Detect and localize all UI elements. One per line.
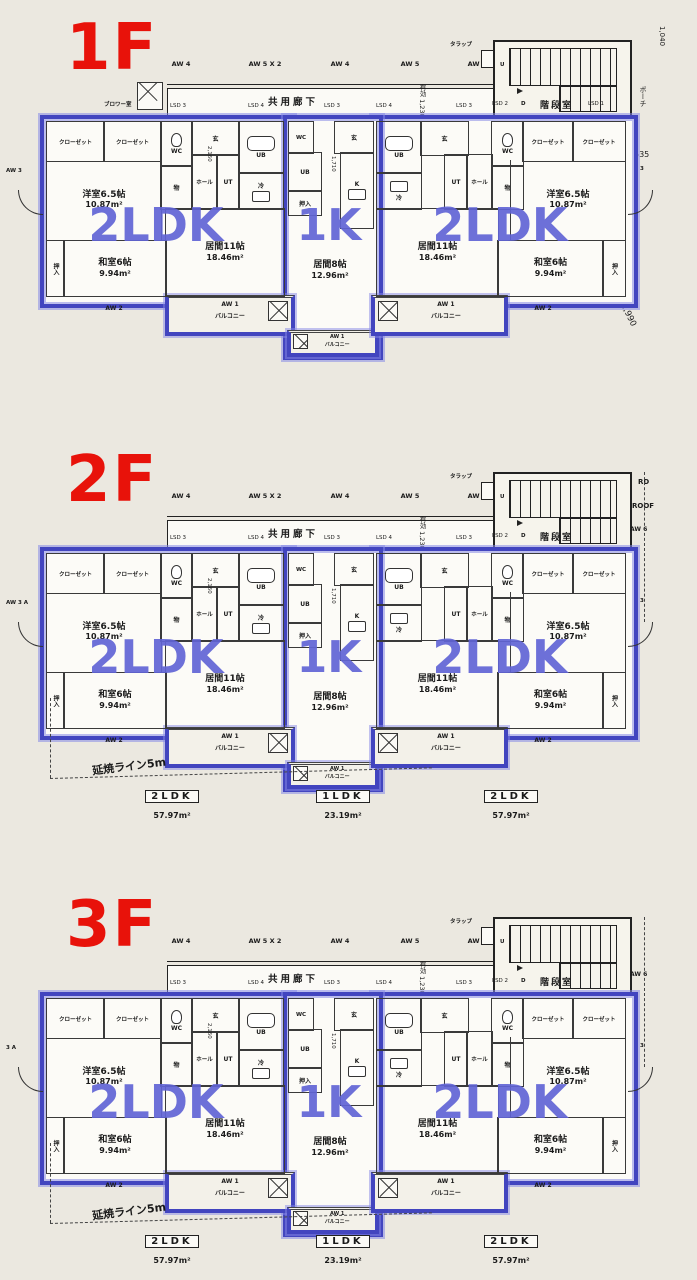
stair-lsd2-label: LSD 2 (492, 978, 508, 984)
common-corridor (167, 520, 494, 547)
balcony: AW 1 バルコニー (371, 295, 508, 336)
room-unit-bath: UB (288, 1029, 322, 1069)
kitchen-sink-icon (390, 613, 408, 624)
unit-summary: 2LDK 57.97m² (471, 784, 551, 822)
room-kitchen: 冷 (238, 604, 284, 642)
trap-ladder-label: タラップ (450, 40, 472, 48)
effective-width-dim: 有効 1,230 (418, 84, 425, 116)
window-label: AW 5 X 2 (249, 937, 282, 945)
window-label: AW 5 (401, 492, 420, 500)
common-corridor (167, 88, 494, 115)
room-wc: WC (288, 121, 314, 154)
room-futon-closet: 押入 (602, 1117, 626, 1174)
room-closet: クローゼット (103, 553, 162, 594)
window-label: AW 4 (331, 492, 350, 500)
kitchen-sink-icon (348, 189, 366, 200)
stair-treads-upper (509, 480, 617, 518)
lsd-door-label: LSD 4 (376, 103, 392, 109)
blower-room-box-icon (137, 82, 163, 110)
window-label: AW 5 X 2 (249, 60, 282, 68)
door-arc (18, 190, 43, 215)
dim-1710: 1,710 (330, 156, 336, 172)
aw2-label: AW 2 (105, 1182, 122, 1189)
lsd-door-label: LSD 3 (170, 980, 186, 986)
unit-summary: 2LDK 57.97m² (132, 1229, 212, 1267)
unit-summary: 2LDK 57.97m² (471, 1229, 551, 1267)
lsd-door-label: LSD 3 (456, 535, 472, 541)
dim-1710: 1,710 (330, 1033, 336, 1049)
room-unit-bath: UB (238, 121, 284, 174)
lsd-door-label: LSD 3 (324, 980, 340, 986)
effective-width-dim: 有効 1,230 (418, 516, 425, 548)
stair-up-label: U (500, 939, 504, 945)
room-wc: WC (160, 553, 193, 599)
hatch-box-icon (268, 733, 288, 753)
lsd-door-label: LSD 4 (248, 535, 264, 541)
hatch-box-icon (293, 766, 308, 781)
room-unit-bath: UB (376, 121, 422, 174)
room-entry: 玄 (191, 553, 240, 588)
hatch-box-icon (268, 301, 288, 321)
lsd-door-label: LSD 4 (248, 980, 264, 986)
room-entry: 玄 (191, 998, 240, 1033)
room-closet: クローゼット (572, 553, 626, 594)
window-band-line (167, 961, 493, 966)
room-futon-closet: 押入 (46, 1117, 65, 1174)
bathtub-icon (247, 568, 275, 583)
trap-ladder-label: タラップ (450, 472, 472, 480)
aw2-label: AW 2 (105, 737, 122, 744)
balcony: AW 1 バルコニー (287, 330, 379, 357)
room-closet: クローゼット (46, 998, 105, 1039)
trap-ladder-label: タラップ (450, 917, 472, 925)
bathtub-icon (385, 1013, 413, 1028)
lsd-door-label: LSD 4 (248, 103, 264, 109)
room-entry: 玄 (420, 998, 469, 1033)
hatch-box-icon (293, 334, 308, 349)
aw2-label: AW 2 (534, 305, 551, 312)
common-corridor (167, 965, 494, 992)
unit-type-label: 2LDK (86, 634, 226, 680)
stair-treads-upper (509, 48, 617, 86)
floor-label: 2F (66, 448, 158, 512)
room-kitchen: 冷 (376, 604, 422, 642)
room-closet: クローゼット (103, 998, 162, 1039)
window-label: AW 5 (401, 60, 420, 68)
kitchen-sink-icon (390, 1058, 408, 1069)
unit-type-label: 2LDK (430, 202, 570, 248)
toilet-icon (502, 133, 513, 147)
stair-up-label: U (500, 494, 504, 500)
corridor-label: 共用廊下 (268, 94, 318, 108)
lsd-door-label: LSD 4 (376, 980, 392, 986)
stair-lsd1-label: LSD 1 (588, 101, 604, 107)
door-arc (18, 622, 43, 647)
aw2-label: AW 2 (534, 1182, 551, 1189)
unit-type-label: 2LDK (86, 1079, 226, 1125)
door-arc (18, 1067, 43, 1092)
door-arc (628, 190, 653, 215)
balcony: AW 1 バルコニー (165, 295, 295, 336)
kitchen-sink-icon (390, 181, 408, 192)
lsd-door-label: LSD 3 (324, 103, 340, 109)
aw2-label: AW 2 (534, 737, 551, 744)
hatch-box-icon (293, 1211, 308, 1226)
stair-down-label: D (521, 978, 526, 984)
room-kitchen: 冷 (376, 172, 422, 210)
room-futon-closet: 押入 (602, 240, 626, 297)
dim-1040: 1,040 (658, 26, 666, 46)
kitchen-sink-icon (252, 191, 270, 202)
stair-lsd2-label: LSD 2 (492, 533, 508, 539)
room-unit-bath: UB (376, 553, 422, 606)
door-arc (628, 622, 653, 647)
room-entry: 玄 (334, 998, 374, 1031)
stairwell-label: 階段室 (540, 530, 573, 543)
balcony: AW 1 バルコニー (371, 1172, 508, 1213)
hatch-box-icon (378, 733, 398, 753)
door-arc (628, 1067, 653, 1092)
room-unit-bath: UB (288, 584, 322, 624)
stair-down-label: D (521, 101, 526, 107)
effective-width-dim: 有効 1,230 (418, 961, 425, 993)
floor-section: 2F AW 4 AW 5 X 2 AW 4 AW 5 AW 4 共用廊下 LSD… (0, 432, 697, 875)
dim-2160: 2,160 (206, 578, 212, 594)
window-label: AW 4 (172, 60, 191, 68)
balcony: AW 1 バルコニー (371, 727, 508, 768)
room-futon-closet: 押入 (602, 672, 626, 729)
stair-direction-arrow (517, 88, 523, 94)
floor-plan-sheet: 1F ブロワー室 AW 4 AW 5 X 2 AW 4 AW 5 AW 4 共用… (0, 0, 697, 1280)
floor-section: 1F ブロワー室 AW 4 AW 5 X 2 AW 4 AW 5 AW 4 共用… (0, 0, 697, 430)
lsd-door-label: LSD 3 (456, 980, 472, 986)
property-dash-line (644, 472, 645, 622)
room-closet: クローゼット (522, 553, 574, 594)
room-unit-bath: UB (238, 998, 284, 1051)
aw2-label: AW 2 (105, 305, 122, 312)
window-label: AW 4 (172, 492, 191, 500)
window-label: AW 4 (172, 937, 191, 945)
room-entry: 玄 (334, 121, 374, 154)
blower-room-label: ブロワー室 (104, 100, 132, 108)
lsd-door-label: LSD 3 (170, 535, 186, 541)
room-unit-bath: UB (238, 553, 284, 606)
bathtub-icon (385, 136, 413, 151)
stair-direction-arrow (517, 520, 523, 526)
corridor-label: 共用廊下 (268, 971, 318, 985)
unit-type-label: 2LDK (430, 634, 570, 680)
room-kitchen: 冷 (238, 1049, 284, 1087)
dim-1710: 1,710 (330, 588, 336, 604)
dim-2160: 2,160 (206, 146, 212, 162)
window-label: AW 4 (331, 60, 350, 68)
bathtub-icon (247, 1013, 275, 1028)
room-wc: WC (160, 998, 193, 1044)
room-closet: クローゼット (572, 121, 626, 162)
hatch-box-icon (268, 1178, 288, 1198)
stair-up-label: U (500, 62, 504, 68)
stairwell-label: 階段室 (540, 975, 573, 988)
stair-treads-upper (509, 925, 617, 963)
stair-down-label: D (521, 533, 526, 539)
floor-section: 3F AW 4 AW 5 X 2 AW 4 AW 5 AW 4 共用廊下 LSD… (0, 877, 697, 1280)
room-closet: クローゼット (46, 553, 105, 594)
room-kitchen: 冷 (376, 1049, 422, 1087)
toilet-icon (171, 565, 182, 579)
lsd-door-label: LSD 3 (456, 103, 472, 109)
window-band-line (167, 516, 493, 521)
room-wc: WC (160, 121, 193, 167)
room-futon-closet: 押入 (46, 240, 65, 297)
room-entry: 玄 (191, 121, 240, 156)
unit-type-label: 1K (283, 636, 375, 680)
unit-summary: 1LDK 23.19m² (303, 1229, 383, 1267)
unit-summary: 2LDK 57.97m² (132, 784, 212, 822)
kitchen-sink-icon (348, 621, 366, 632)
stair-direction-arrow (517, 965, 523, 971)
balcony: AW 1 バルコニー (165, 1172, 295, 1213)
unit-type-label: 2LDK (86, 202, 226, 248)
room-entry: 玄 (334, 553, 374, 586)
window-label: AW 5 X 2 (249, 492, 282, 500)
floor-label: 1F (66, 16, 158, 80)
hatch-box-icon (378, 1178, 398, 1198)
kitchen-sink-icon (252, 1068, 270, 1079)
window-label: AW 5 (401, 937, 420, 945)
unit-type-label: 1K (283, 204, 375, 248)
stairwell-label: 階段室 (540, 98, 573, 111)
toilet-icon (171, 1010, 182, 1024)
balcony: AW 1 バルコニー (165, 727, 295, 768)
room-unit-bath: UB (288, 152, 322, 192)
room-closet: クローゼット (103, 121, 162, 162)
room-closet: クローゼット (522, 121, 574, 162)
property-dash-line (644, 917, 645, 1067)
dim-2160: 2,160 (206, 1023, 212, 1039)
lsd-door-label: LSD 3 (324, 535, 340, 541)
unit-summary: 1LDK 23.19m² (303, 784, 383, 822)
room-kitchen: 冷 (238, 172, 284, 210)
bathtub-icon (247, 136, 275, 151)
toilet-icon (171, 133, 182, 147)
bathtub-icon (385, 568, 413, 583)
window-band-line (167, 84, 493, 89)
room-closet: クローゼット (522, 998, 574, 1039)
unit-type-label: 1K (283, 1081, 375, 1125)
room-wc: WC (288, 998, 314, 1031)
left-window-label: 3 A (6, 1045, 16, 1051)
toilet-icon (502, 565, 513, 579)
lsd-door-label: LSD 3 (170, 103, 186, 109)
room-entry: 玄 (420, 121, 469, 156)
toilet-icon (502, 1010, 513, 1024)
corridor-label: 共用廊下 (268, 526, 318, 540)
left-window-label: AW 3 A (6, 600, 28, 606)
hatch-box-icon (378, 301, 398, 321)
room-entry: 玄 (420, 553, 469, 588)
unit-type-label: 2LDK (430, 1079, 570, 1125)
kitchen-sink-icon (252, 623, 270, 634)
room-unit-bath: UB (376, 998, 422, 1051)
floor-label: 3F (66, 893, 158, 957)
room-closet: クローゼット (572, 998, 626, 1039)
room-closet: クローゼット (46, 121, 105, 162)
kitchen-sink-icon (348, 1066, 366, 1077)
window-label: AW 4 (331, 937, 350, 945)
room-futon-closet: 押入 (46, 672, 65, 729)
room-wc: WC (288, 553, 314, 586)
stair-lsd2-label: LSD 2 (492, 101, 508, 107)
left-window-label: AW 3 (6, 168, 22, 174)
lsd-door-label: LSD 4 (376, 535, 392, 541)
porch-label: ポーチ (638, 86, 648, 107)
